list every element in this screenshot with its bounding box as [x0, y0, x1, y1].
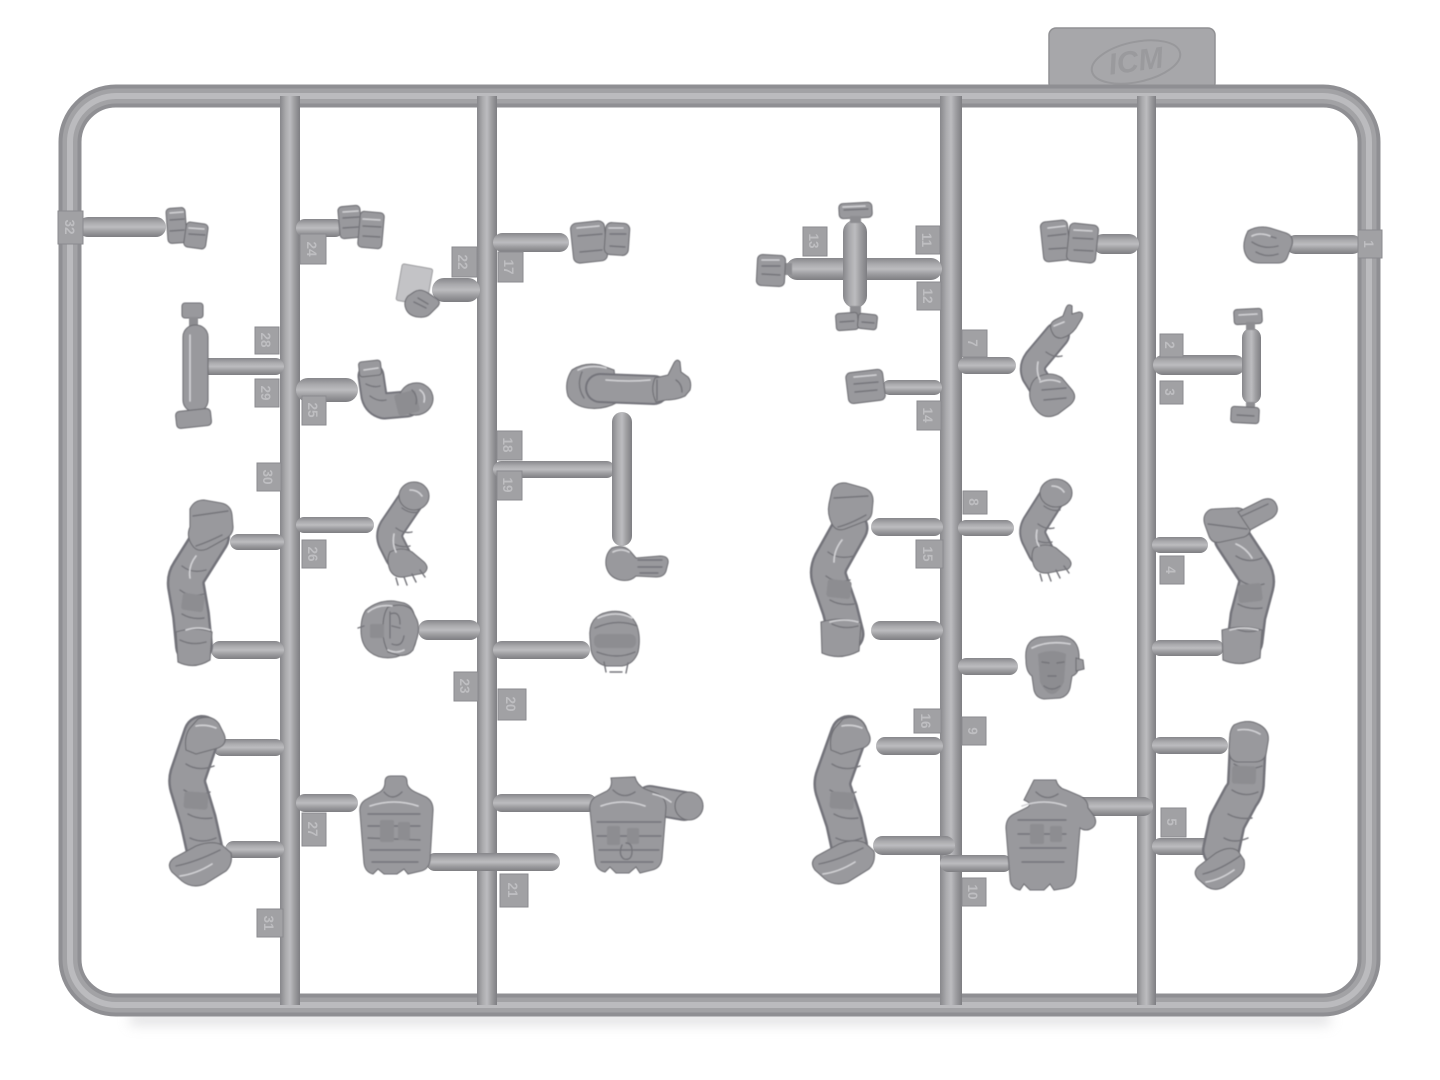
svg-text:10: 10 [965, 884, 980, 899]
svg-text:24: 24 [304, 241, 319, 257]
svg-text:8: 8 [966, 498, 981, 506]
svg-text:18: 18 [500, 437, 515, 453]
svg-text:28: 28 [258, 332, 273, 348]
svg-text:29: 29 [258, 385, 273, 400]
svg-text:14: 14 [920, 407, 935, 423]
svg-text:25: 25 [305, 402, 320, 418]
svg-text:5: 5 [1164, 818, 1179, 826]
svg-text:11: 11 [919, 233, 934, 248]
svg-text:27: 27 [305, 821, 320, 836]
svg-text:21: 21 [505, 882, 520, 898]
svg-text:19: 19 [500, 477, 515, 492]
svg-text:31: 31 [261, 915, 276, 931]
svg-text:3: 3 [1162, 388, 1177, 396]
svg-text:22: 22 [455, 254, 470, 269]
svg-text:17: 17 [501, 259, 516, 274]
svg-text:7: 7 [965, 339, 980, 347]
svg-text:1: 1 [1361, 240, 1376, 248]
svg-text:9: 9 [965, 727, 980, 735]
svg-text:4: 4 [1163, 566, 1178, 574]
svg-text:12: 12 [920, 288, 935, 303]
svg-text:20: 20 [503, 696, 518, 711]
svg-text:15: 15 [920, 546, 935, 562]
svg-text:13: 13 [806, 233, 821, 249]
svg-text:16: 16 [918, 713, 933, 729]
svg-text:30: 30 [260, 469, 275, 484]
svg-text:26: 26 [305, 546, 320, 562]
svg-text:2: 2 [1162, 341, 1177, 349]
svg-text:23: 23 [457, 678, 472, 694]
svg-text:32: 32 [62, 219, 77, 234]
